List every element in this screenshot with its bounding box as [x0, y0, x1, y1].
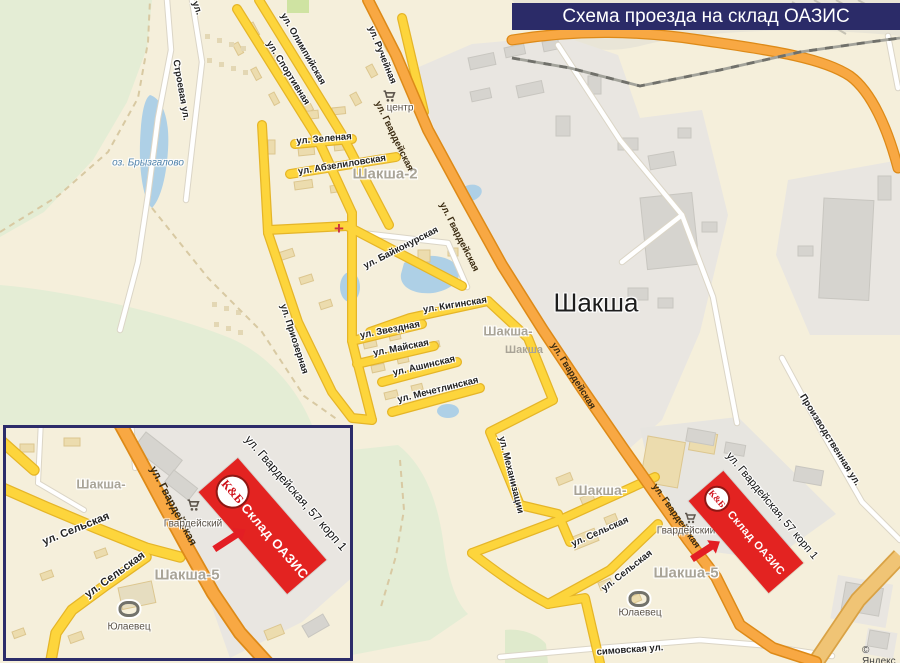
hospital-cross-icon: +: [334, 219, 344, 239]
inset-poi-label-gvardeysky: Гвардейский: [164, 519, 222, 530]
shopping-cart-icon: [382, 90, 396, 103]
map-attribution: © Яндекс: [862, 645, 900, 663]
page-title: Схема проезда на склад ОАЗИС: [562, 6, 849, 28]
poi-label-yulaevets: Юлаевец: [618, 608, 661, 619]
inset-poi-label-yulaevets: Юлаевец: [107, 622, 150, 633]
district-label-shaksha-4-partial: Шакша-: [574, 482, 627, 498]
lake-label-bryzgalovo: оз. Брызгалово: [112, 158, 184, 169]
poi-label-gvardeysky: Гвардейский: [657, 526, 715, 537]
stadium-icon: [629, 591, 650, 607]
inset-district-label-shaksha-5: Шакша-5: [154, 567, 219, 584]
inset-map: Шакша- ул. Сельская ул. Сельская ул. Гва…: [3, 425, 353, 661]
station-label-shaksha: Шакша: [505, 344, 543, 356]
district-label-shaksha-3-partial: Шакша-: [483, 324, 532, 339]
inset-district-label-shaksha-4-partial: Шакша-: [76, 477, 125, 492]
shopping-cart-icon: [186, 499, 200, 512]
map-canvas: Шакша Шакша-2 Шакша- Шакша Шакша- Шакша-…: [0, 0, 900, 663]
stadium-icon: [119, 601, 140, 617]
poi-label-shopping-center: центр: [387, 103, 414, 114]
district-label-shaksha-5: Шакша-5: [653, 565, 718, 582]
title-banner: Схема проезда на склад ОАЗИС: [512, 3, 900, 30]
shopping-cart-icon: [684, 512, 697, 524]
city-label-shaksha: Шакша: [554, 288, 639, 319]
